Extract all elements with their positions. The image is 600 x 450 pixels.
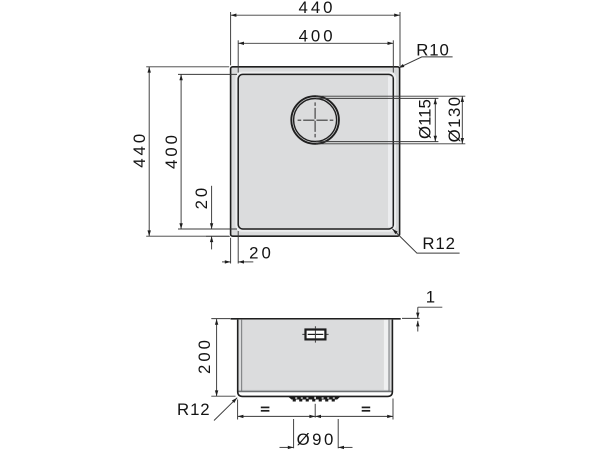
svg-text:400: 400 (299, 27, 336, 46)
svg-text:20: 20 (249, 244, 274, 263)
svg-text:400: 400 (162, 132, 181, 169)
svg-text:20: 20 (192, 185, 211, 210)
svg-text:R12: R12 (177, 400, 211, 419)
svg-text:Ø130: Ø130 (445, 95, 464, 142)
svg-text:Ø115: Ø115 (415, 99, 434, 139)
svg-text:R12: R12 (422, 234, 456, 253)
svg-text:Ø90: Ø90 (297, 430, 336, 449)
svg-text:1: 1 (426, 287, 435, 306)
svg-text:440: 440 (299, 0, 336, 17)
svg-text:200: 200 (195, 337, 214, 374)
svg-text:440: 440 (130, 131, 149, 168)
svg-text:R10: R10 (416, 40, 450, 59)
